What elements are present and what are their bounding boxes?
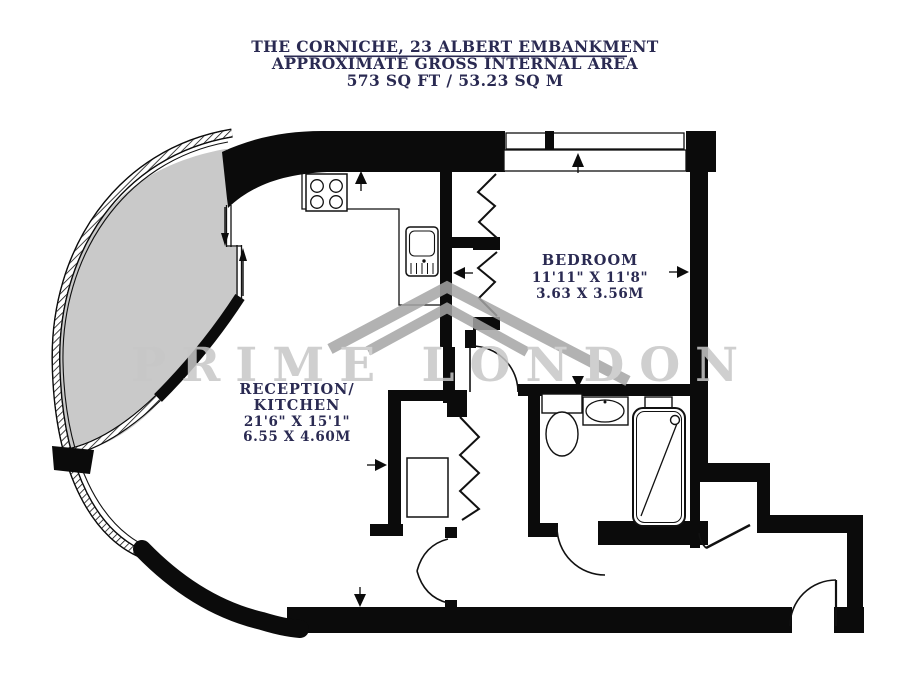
hall-double-doors (417, 539, 448, 603)
shower-icon (633, 397, 685, 526)
bedroom-name: BEDROOM (542, 252, 638, 269)
arrow-icon (367, 459, 387, 471)
appliance (407, 458, 448, 517)
utility-bifold-doors (460, 417, 479, 520)
arrow-icon (354, 587, 366, 607)
floorplan-page: PRIME LONDON THE CORNICHE, 23 ALBERT EMB… (0, 0, 916, 690)
bathroom-fixtures (542, 394, 685, 526)
bedroom-size-metric: 3.63 X 3.56M (536, 286, 644, 302)
stove-hob-icon (306, 174, 347, 211)
watermark-text: PRIME LONDON (131, 338, 753, 393)
reception-name-line2: KITCHEN (254, 397, 341, 414)
title-line3: 573 SQ FT / 53.23 SQ M (347, 71, 564, 90)
reception-name-line1: RECEPTION/ (239, 381, 354, 398)
arrow-icon (669, 266, 689, 278)
reception-size-imperial: 21'6" X 15'1" (244, 414, 350, 430)
utility-cupboard (407, 417, 479, 520)
arrow-icon (355, 171, 367, 191)
balcony-tip-wall (52, 446, 94, 474)
kitchen-sink-icon (406, 227, 438, 276)
basin-icon (583, 397, 628, 425)
bedroom-window (504, 131, 686, 171)
entrance-door (790, 580, 836, 626)
bedroom-label: BEDROOM 11'11" X 11'8" 3.63 X 3.56M (532, 252, 648, 302)
floor-plan-canvas: PRIME LONDON THE CORNICHE, 23 ALBERT EMB… (0, 0, 916, 690)
reception-kitchen-label: RECEPTION/ KITCHEN 21'6" X 15'1" 6.55 X … (239, 381, 354, 445)
title-block: THE CORNICHE, 23 ALBERT EMBANKMENT APPRO… (251, 37, 659, 90)
curved-outer-wall (142, 549, 300, 629)
bedroom-size-imperial: 11'11" X 11'8" (532, 270, 648, 286)
toilet-icon (542, 394, 582, 456)
bathroom-door (557, 527, 605, 575)
reception-size-metric: 6.55 X 4.60M (243, 429, 351, 445)
arrow-icon (453, 267, 473, 279)
